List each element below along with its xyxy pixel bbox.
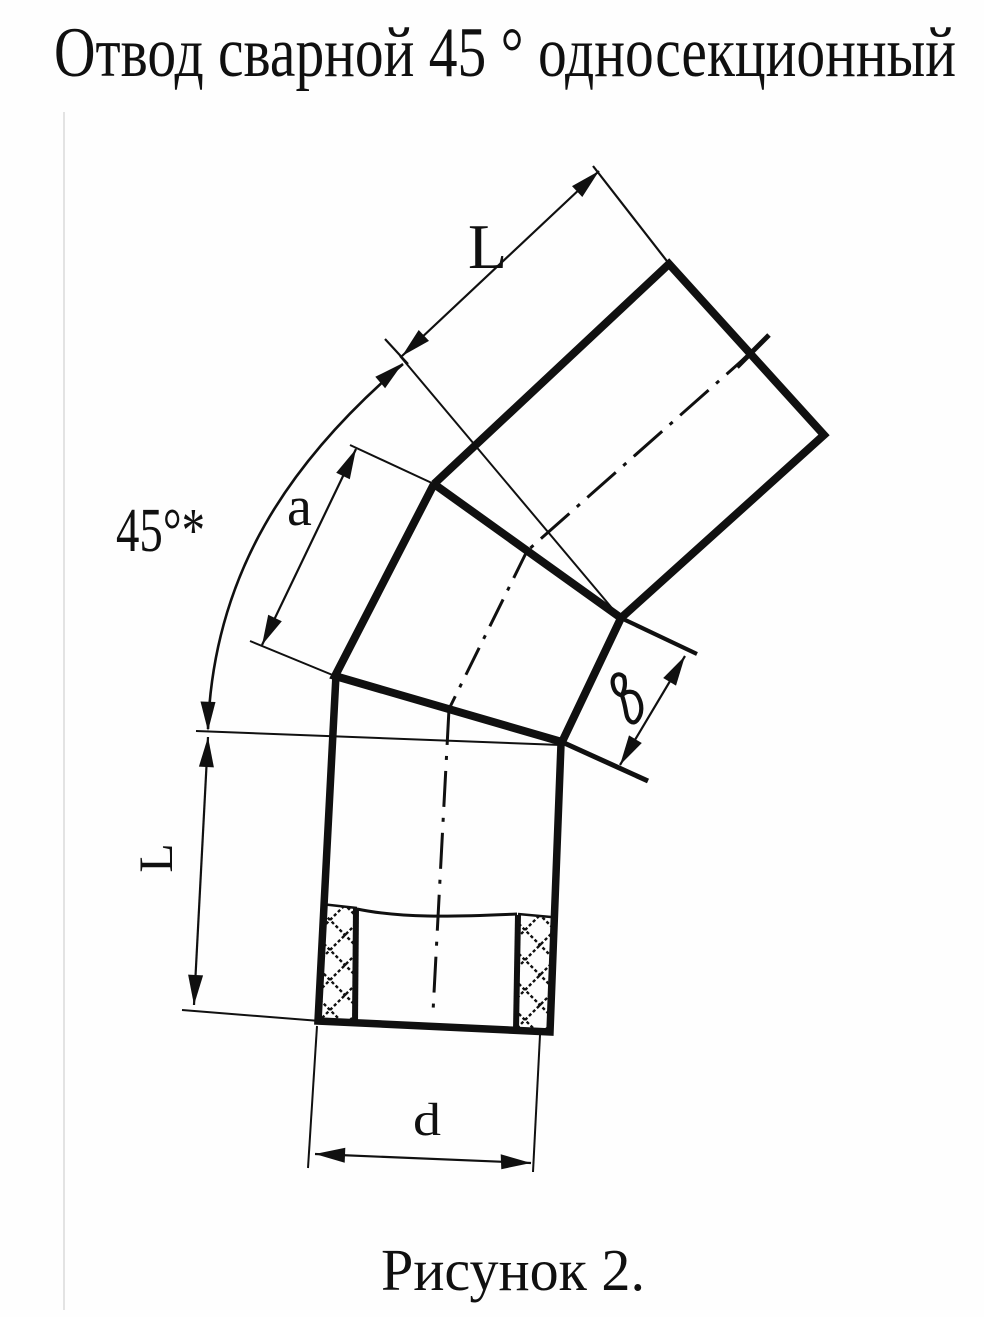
svg-text:Рисунок 2.: Рисунок 2.	[381, 1237, 645, 1303]
svg-text:L: L	[468, 211, 507, 282]
svg-text:45°*: 45°*	[116, 497, 205, 565]
svg-text:L: L	[130, 843, 183, 872]
svg-text:a: a	[287, 476, 312, 538]
svg-text:d: d	[413, 1094, 441, 1146]
svg-text:Отвод сварной 45 ° односекцион: Отвод сварной 45 ° односекционный	[54, 14, 956, 92]
